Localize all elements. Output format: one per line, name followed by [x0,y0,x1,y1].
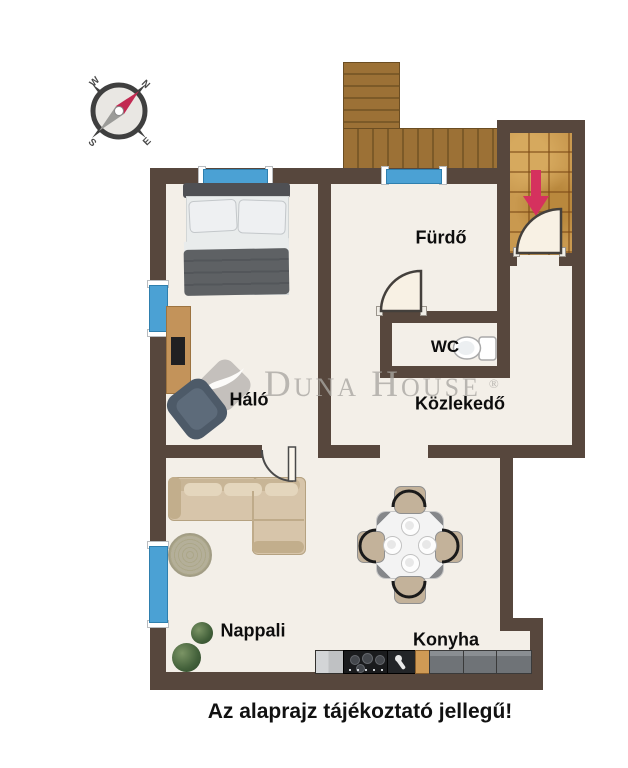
room-label-bathroom: Fürdő [416,228,467,249]
floor-plan: Duna House ® [0,0,628,768]
entry-arrow-icon [523,170,549,216]
dining-chair-back [442,530,458,562]
room-label-bedroom: Háló [229,390,268,411]
bathroom-door [381,271,421,311]
entry-door [517,209,561,253]
room-label-kitchen: Konyha [413,630,479,651]
dining-chair-back [360,530,376,562]
toilet-icon [454,337,497,360]
room-label-living: Nappali [220,621,285,642]
room-label-wc: WC [431,337,459,357]
room-label-hallway: Közlekedő [415,394,505,415]
dining-chair-back [393,581,425,597]
bedroom-door-leaf [289,447,296,481]
dining-chair-back [393,491,425,507]
disclaimer-text: Az alaprajz tájékoztató jellegű! [120,700,600,724]
